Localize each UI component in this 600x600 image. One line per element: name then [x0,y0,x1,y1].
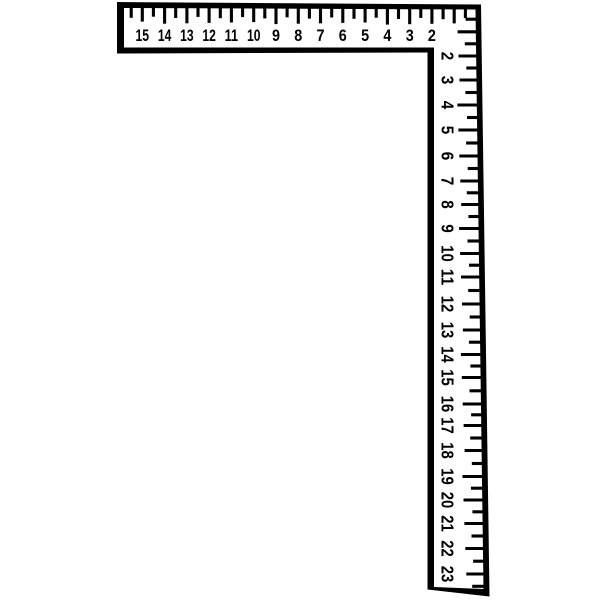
svg-text:18: 18 [437,442,457,459]
svg-text:6: 6 [437,152,457,161]
svg-text:21: 21 [437,515,457,532]
svg-text:8: 8 [294,27,302,45]
svg-text:5: 5 [361,27,369,45]
svg-text:20: 20 [437,492,457,509]
svg-text:2: 2 [428,27,436,45]
svg-text:5: 5 [437,126,457,135]
svg-text:7: 7 [317,27,325,45]
svg-text:3: 3 [406,27,414,45]
svg-text:8: 8 [437,200,457,209]
svg-text:4: 4 [383,27,392,45]
svg-text:19: 19 [437,468,457,485]
svg-text:7: 7 [437,177,457,186]
svg-text:15: 15 [437,369,457,386]
svg-text:15: 15 [136,27,150,45]
svg-text:6: 6 [339,27,347,45]
svg-text:16: 16 [437,396,457,413]
svg-text:13: 13 [180,27,194,45]
svg-text:11: 11 [225,27,239,45]
svg-text:10: 10 [247,27,261,45]
svg-text:11: 11 [437,269,457,286]
svg-text:17: 17 [437,417,457,434]
svg-text:13: 13 [437,322,457,339]
svg-text:10: 10 [437,245,457,262]
svg-text:3: 3 [437,76,457,85]
svg-text:22: 22 [437,540,457,557]
svg-text:9: 9 [272,27,280,45]
svg-text:12: 12 [202,27,216,45]
svg-text:14: 14 [437,346,457,363]
svg-text:9: 9 [437,224,457,233]
svg-text:23: 23 [437,566,457,583]
svg-text:4: 4 [437,101,457,110]
svg-text:2: 2 [437,52,457,61]
svg-text:14: 14 [158,27,172,45]
svg-text:12: 12 [437,296,457,313]
